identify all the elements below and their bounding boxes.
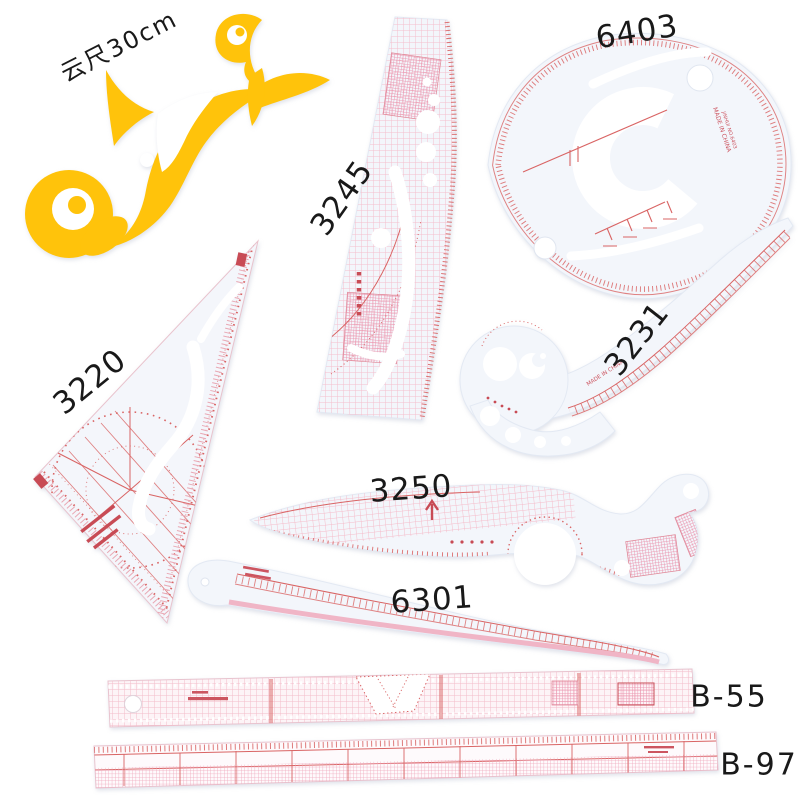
- grid-ruler-shape: [100, 665, 700, 733]
- gradation-ruler: [88, 726, 723, 794]
- label-b97: B-97: [720, 748, 798, 783]
- grid-ruler-hole: [125, 696, 142, 713]
- grid-ruler-markings: [108, 669, 694, 727]
- hip-curve-hole: [201, 578, 209, 586]
- label-6301: 6301: [389, 579, 474, 621]
- label-b55: B-55: [690, 680, 768, 715]
- label-3250: 3250: [368, 468, 453, 510]
- cloud-curve-ruler: [6, 8, 341, 268]
- gradation-ruler-shape: [88, 726, 723, 794]
- product-photo: MADE IN CHINA JINHUI NO.6403: [0, 0, 800, 800]
- curve-comb-hook-hole: [683, 483, 699, 499]
- cloud-curve-shape: [6, 8, 341, 268]
- french-curve-spiral-dot: [540, 353, 546, 359]
- grid-ruler: [100, 665, 700, 733]
